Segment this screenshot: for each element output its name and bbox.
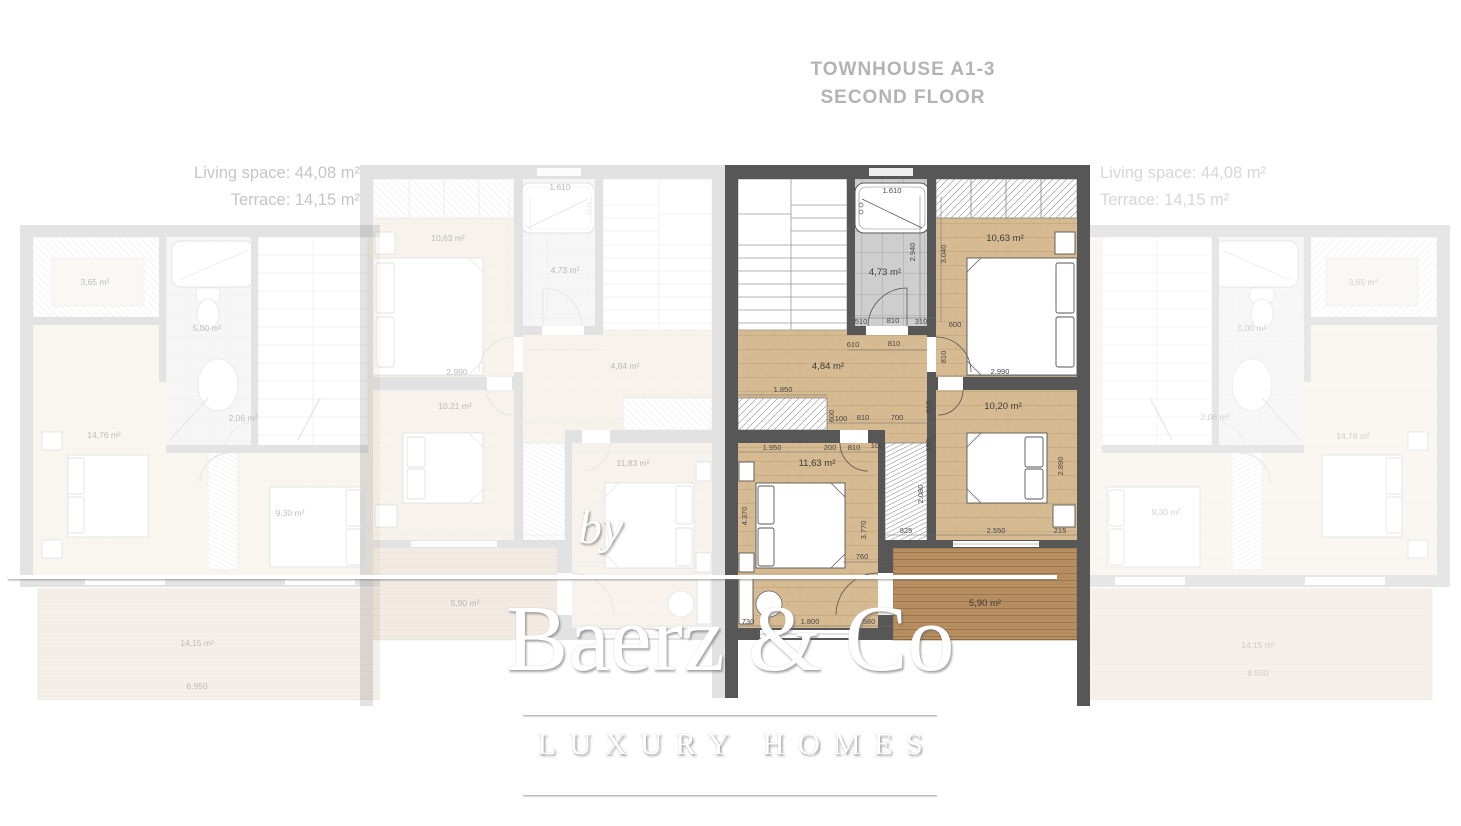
dim-label: 610 [847, 340, 860, 349]
floorplan-page: 4,73 m² 10,63 m² 4,84 m² 10,20 m² 11,63 … [0, 0, 1461, 826]
dim-label: 1.950 [763, 443, 782, 452]
page-title: TOWNHOUSE A1-3 SECOND FLOOR [810, 56, 995, 112]
room-label-bedroom-top: 10,63 m² [986, 233, 1024, 244]
dim-label: 700 [891, 413, 904, 422]
dim-label: 810 [848, 443, 861, 452]
watermark-brand: Baerz & Co [495, 583, 965, 696]
room-label-hallway: 4,84 m² [812, 361, 844, 372]
dim-label: 600 [949, 320, 962, 329]
living-space-label: Living space: 44,08 m² [130, 160, 360, 187]
dim-label: 2.990 [991, 367, 1010, 376]
left-unit-info: Living space: 44,08 m² Terrace: 14,15 m² [130, 160, 360, 214]
dim-label: 100 [835, 414, 848, 423]
faded-room-label: 10,21 m² [438, 401, 472, 411]
faded-room-label: 2,06 m² [1201, 412, 1230, 422]
dim-label: 760 [856, 552, 869, 561]
dim-label: 1.850 [774, 385, 793, 394]
faded-room-label: 9,30 m² [276, 508, 305, 518]
faded-room-label: 4,73 m² [551, 265, 580, 275]
watermark-by: by [578, 500, 623, 555]
dim-label: 215 [1054, 526, 1067, 535]
dim-label: 1.610 [883, 186, 902, 195]
faded-room-label: 5,00 m² [1238, 323, 1267, 333]
dim-label: 2.080 [916, 485, 925, 504]
room-label-bathroom: 4,73 m² [869, 267, 901, 278]
dim-label: 2.940 [908, 243, 917, 262]
room-label-bedroom-mid: 10,20 m² [984, 401, 1022, 412]
faded-dim-label: 1.610 [549, 182, 571, 192]
title-line-2: SECOND FLOOR [810, 84, 995, 112]
dim-label: 810 [939, 351, 948, 364]
faded-room-label: 5,90 m² [451, 598, 480, 608]
living-space-label: Living space: 44,08 m² [1100, 160, 1360, 187]
faded-room-label: 9,30 m² [1152, 507, 1181, 517]
faded-room-label: 2,06 m² [229, 413, 258, 423]
floorplan-drawing: 4,73 m² 10,63 m² 4,84 m² 10,20 m² 11,63 … [0, 0, 1461, 826]
faded-room-label: 5,00 m² [193, 323, 222, 333]
faded-room-label: 3,65 m² [1349, 277, 1378, 287]
terrace-label: Terrace: 14,15 m² [1100, 187, 1360, 214]
faded-room-label: 14,15 m² [1241, 640, 1275, 650]
dim-label: 2.550 [987, 526, 1006, 535]
faded-dim-label: 2.990 [446, 367, 468, 377]
dim-label: 810 [888, 339, 901, 348]
dim-label: 810 [924, 401, 933, 414]
dim-label: 810 [857, 413, 870, 422]
dim-label: 100 [871, 441, 884, 450]
faded-unit-far-left [20, 225, 380, 700]
dim-label: 2.890 [1056, 457, 1065, 476]
terrace-label: Terrace: 14,15 m² [130, 187, 360, 214]
watermark-line [8, 575, 1057, 579]
room-label-terrace: 5,90 m² [969, 598, 1001, 609]
faded-room-label: 11,83 m² [617, 458, 650, 468]
dim-label: 810 [887, 316, 900, 325]
faded-room-label: 3,65 m² [81, 277, 110, 287]
dim-label: 3.040 [939, 245, 948, 264]
dim-label: 510 [855, 317, 868, 326]
title-line-1: TOWNHOUSE A1-3 [810, 56, 995, 84]
watermark-rule-bottom [523, 792, 937, 795]
dim-label: 3.770 [859, 521, 868, 540]
dim-label: 825 [900, 526, 913, 535]
right-unit-info: Living space: 44,08 m² Terrace: 14,15 m² [1100, 160, 1360, 214]
room-label-bedroom-left: 11,63 m² [799, 458, 836, 469]
faded-room-label: 4,84 m² [611, 361, 640, 371]
faded-room-label: 14,76 m² [1336, 431, 1370, 441]
faded-room-label: 14,15 m² [180, 638, 214, 648]
watermark-tagline: LUXURY HOMES [495, 726, 965, 762]
dim-label: 310 [915, 317, 928, 326]
faded-dim-label: 8.550 [1247, 668, 1269, 678]
faded-room-label: 14,76 m² [87, 430, 121, 440]
faded-room-label: 10,63 m² [431, 233, 465, 243]
watermark-rule-top [523, 712, 937, 715]
faded-unit-far-right [1090, 225, 1450, 700]
dim-label: 100 [924, 439, 933, 452]
dim-label: 200 [824, 443, 837, 452]
faded-dim-label: 6.950 [186, 681, 208, 691]
dim-label: 4.370 [740, 507, 749, 526]
